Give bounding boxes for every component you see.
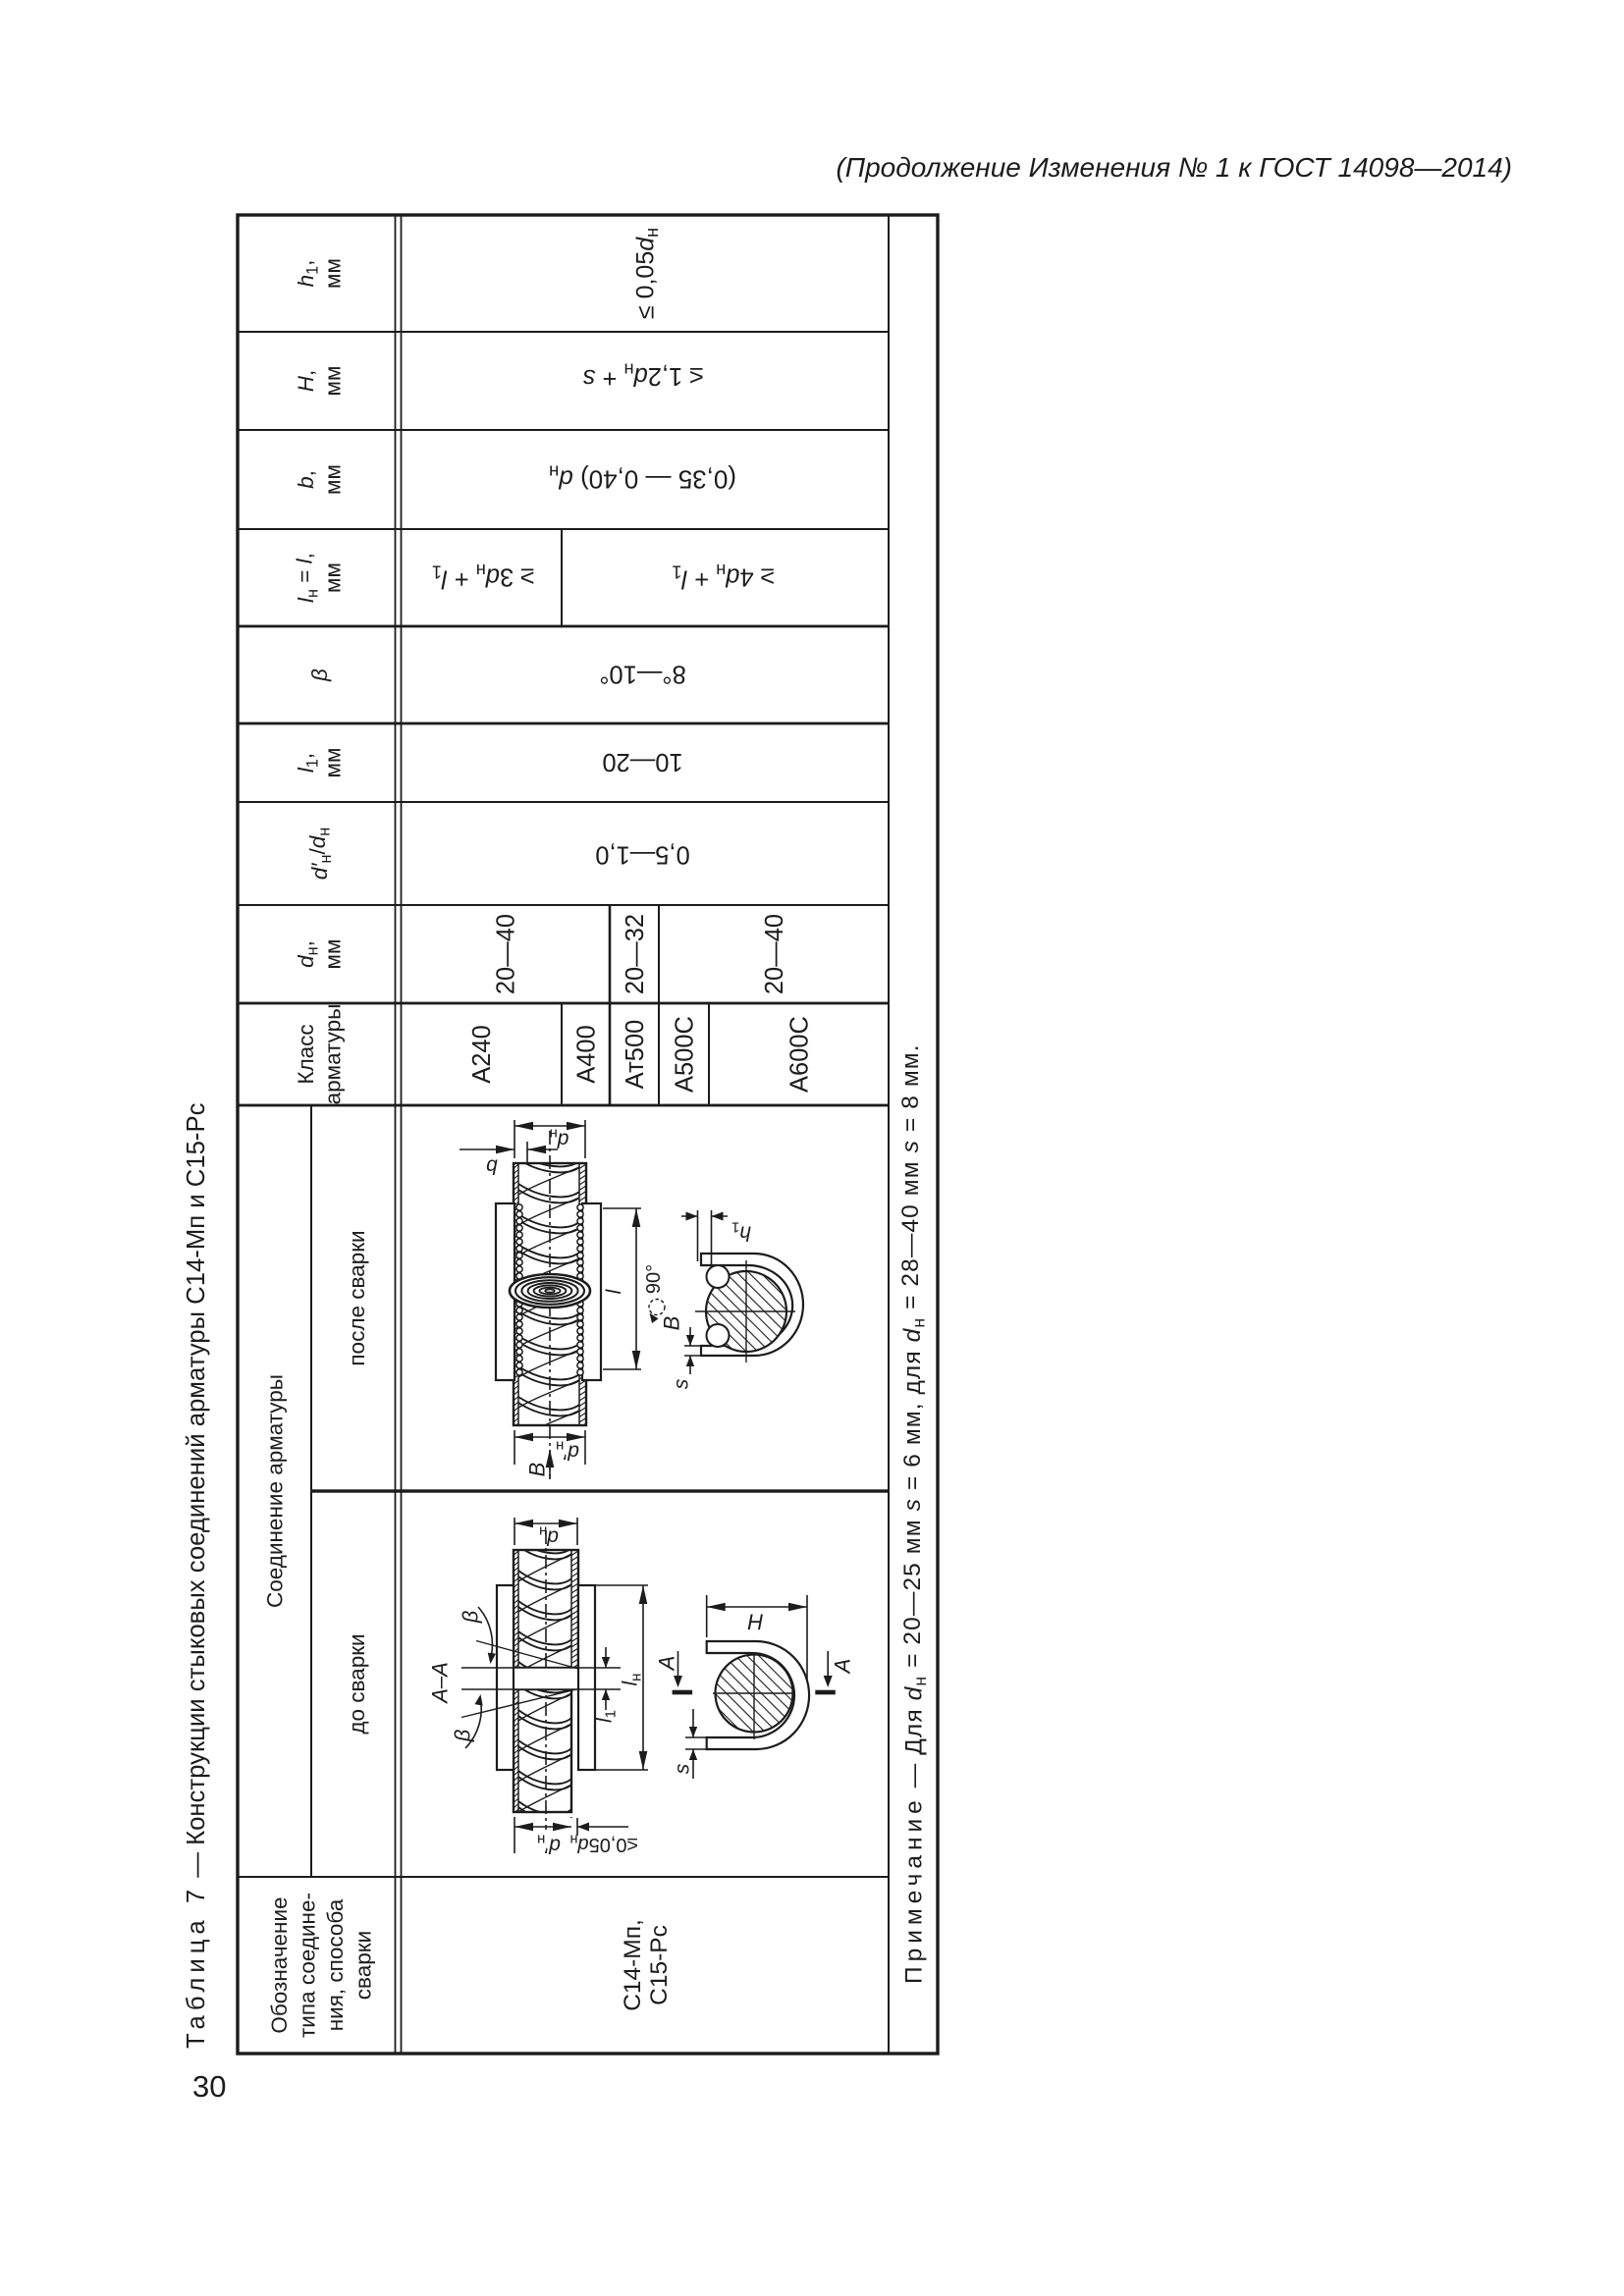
svg-text:А–А: А–А (428, 1662, 453, 1705)
svg-text:А600С: А600С (785, 1016, 813, 1093)
svg-text:s: s (671, 1763, 693, 1774)
svg-text:Обозначение: Обозначение (267, 1896, 292, 2033)
svg-text:≤ 1,2dн + s: ≤ 1,2dн + s (582, 359, 703, 392)
svg-text:Н: Н (747, 1610, 763, 1634)
svg-text:А: А (655, 1656, 679, 1673)
svg-text:Таблица 7 — Конструкции стыко: Таблица 7 — Конструкции стыковых соедине… (183, 1102, 210, 2049)
svg-text:30: 30 (192, 2069, 226, 2104)
svg-text:β: β (459, 1610, 483, 1624)
svg-text:А: А (831, 1659, 855, 1676)
svg-text:В: В (525, 1463, 550, 1477)
svg-text:β: β (451, 1729, 475, 1742)
svg-text:мм: мм (321, 464, 346, 495)
svg-text:мм: мм (321, 562, 346, 593)
svg-text:мм: мм (321, 258, 346, 289)
svg-text:С15-Рс: С15-Рс (646, 1925, 673, 2005)
svg-text:0,5—1,0: 0,5—1,0 (595, 841, 689, 869)
svg-text:мм: мм (321, 939, 346, 970)
svg-text:20—40: 20—40 (761, 914, 788, 994)
svg-text:до сварки: до сварки (345, 1633, 369, 1734)
svg-text:после сварки: после сварки (345, 1230, 369, 1365)
svg-text:b,: b, (294, 470, 318, 489)
svg-text:90°: 90° (643, 1264, 665, 1294)
svg-text:8°—10°: 8°—10° (599, 661, 685, 688)
svg-text:≤ 0,05dн: ≤ 0,05dн (632, 228, 663, 319)
svg-text:арматуры: арматуры (321, 1004, 346, 1105)
svg-text:С14-Мп,: С14-Мп, (620, 1919, 646, 2011)
svg-text:сварки: сварки (352, 1931, 376, 2000)
svg-text:10—20: 10—20 (602, 748, 682, 775)
svg-text:≤0,05dн: ≤0,05dн (570, 1831, 638, 1855)
svg-text:А500С: А500С (671, 1016, 698, 1093)
svg-text:Соединение арматуры: Соединение арматуры (262, 1374, 287, 1608)
svg-text:b: b (486, 1155, 498, 1178)
svg-text:мм: мм (321, 366, 346, 397)
svg-text:(0,35 — 0,40) dн: (0,35 — 0,40) dн (549, 462, 736, 495)
svg-text:А400: А400 (572, 1025, 600, 1084)
svg-text:Ат500: Ат500 (622, 1020, 649, 1090)
svg-text:Н,: Н, (294, 370, 318, 393)
svg-text:Класс: Класс (294, 1024, 318, 1084)
svg-text:20—40: 20—40 (493, 914, 520, 994)
svg-text:s: s (670, 1378, 692, 1389)
svg-text:А240: А240 (468, 1025, 496, 1084)
svg-text:типа соедине-: типа соедине- (296, 1893, 320, 2038)
svg-text:ния, способа: ния, способа (323, 1898, 348, 2031)
svg-text:В: В (660, 1316, 684, 1331)
svg-text:β: β (307, 668, 332, 682)
svg-text:мм: мм (321, 748, 346, 778)
svg-text:20—32: 20—32 (622, 914, 649, 994)
svg-text:(Продолжение Изменения № 1 к Г: (Продолжение Изменения № 1 к ГОСТ 14098—… (836, 152, 1512, 183)
